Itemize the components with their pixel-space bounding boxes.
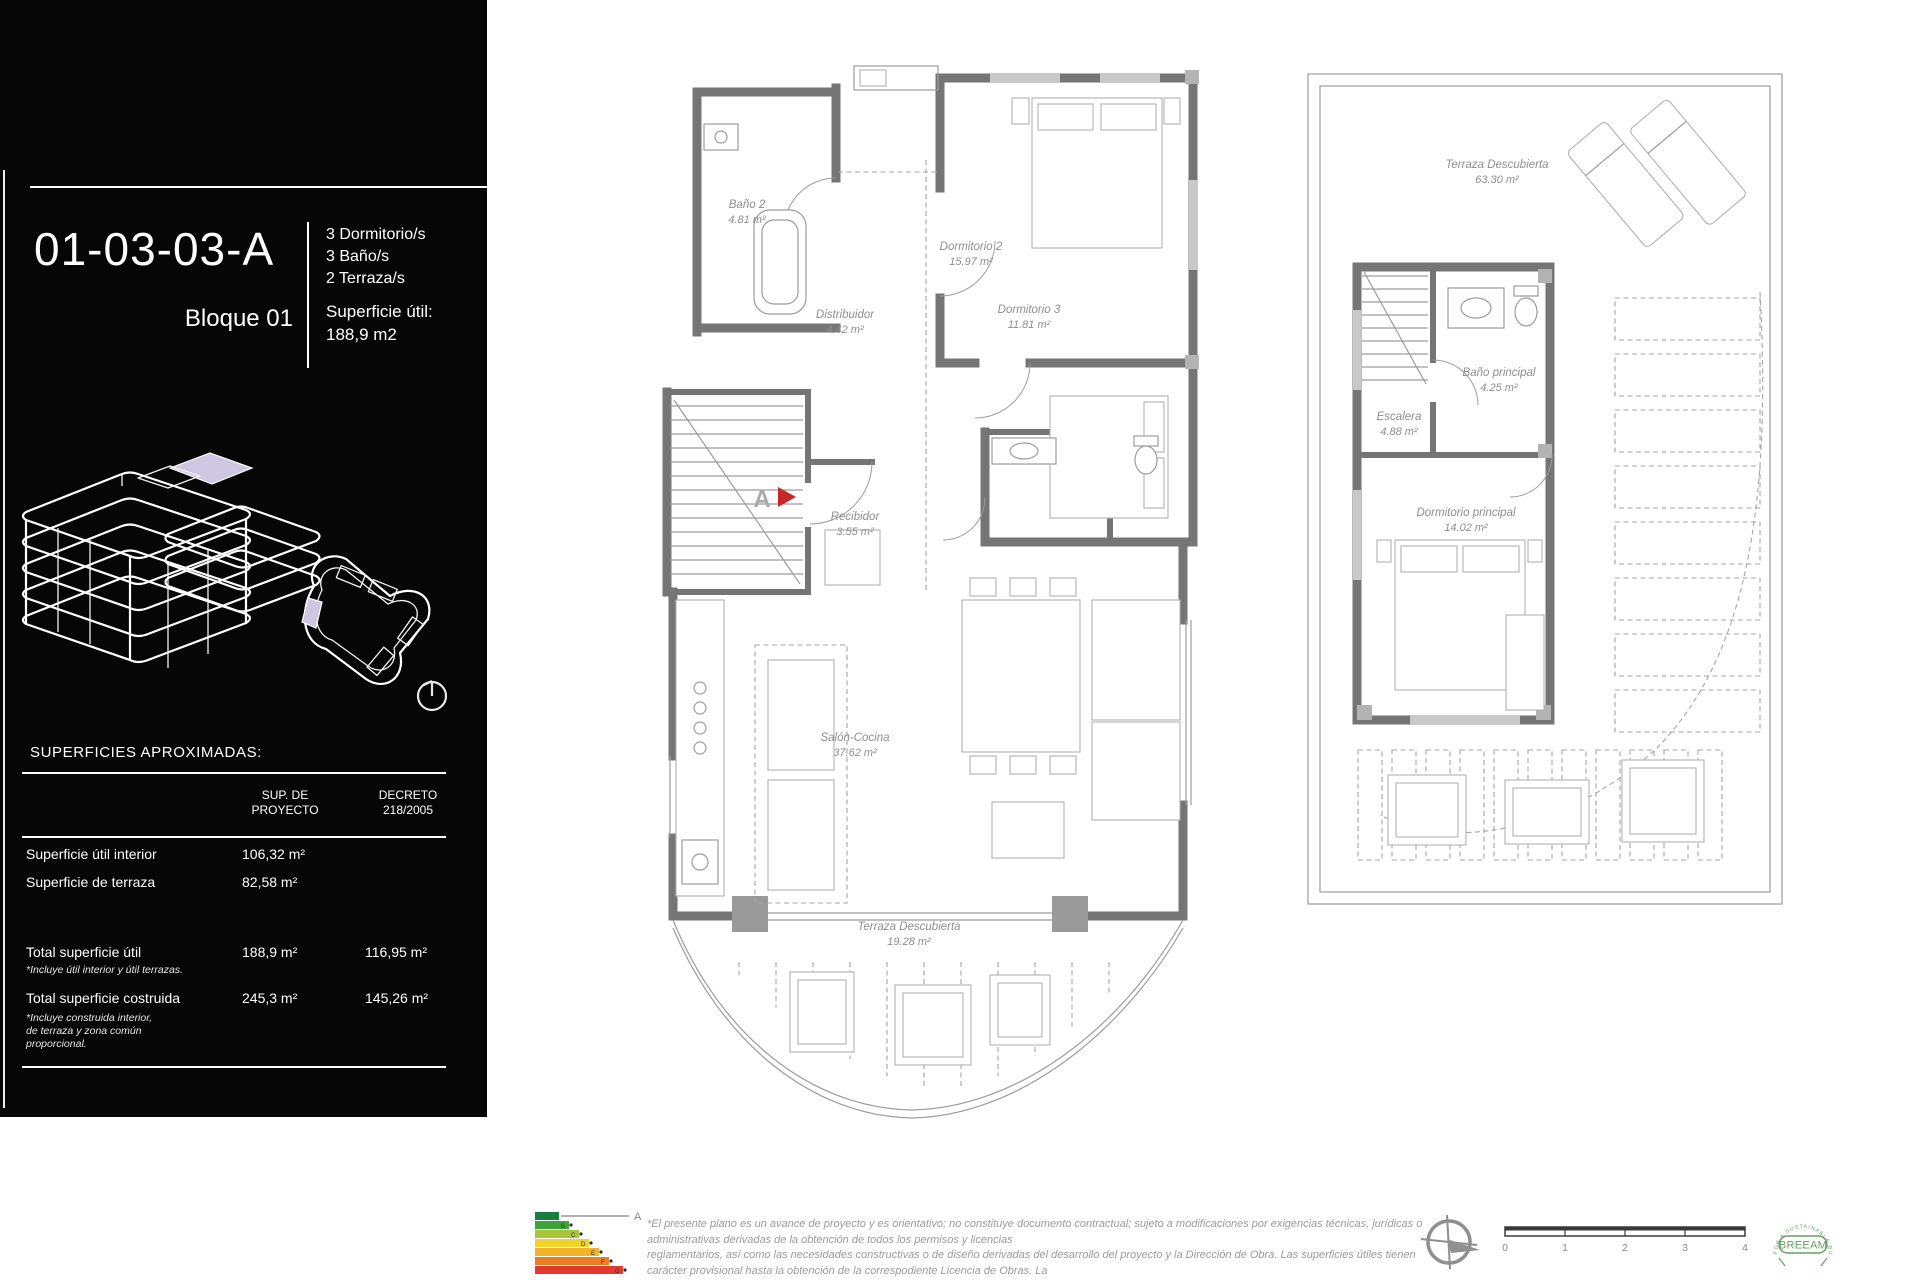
scale-tick: 3 bbox=[1682, 1242, 1688, 1254]
north-indicator-icon bbox=[418, 681, 446, 710]
disclaimer-line: reglamentarios, así como las necesidades… bbox=[647, 1248, 1422, 1264]
feature-bedrooms: 3 Dormitorio/s bbox=[326, 224, 426, 246]
block-name: Bloque 01 bbox=[0, 305, 293, 333]
fixtures-and-furniture bbox=[1377, 286, 1544, 710]
unit-features: 3 Dormitorio/s 3 Baño/s 2 Terraza/s bbox=[326, 224, 426, 290]
feature-bathrooms: 3 Baño/s bbox=[326, 246, 426, 268]
bar-letter: G bbox=[615, 1269, 620, 1275]
titleblock-divider bbox=[307, 222, 309, 368]
room-area: 4.81 m² bbox=[728, 214, 766, 226]
room-label: Baño principal bbox=[1463, 367, 1536, 379]
disclaimer-line: carácter provisional hasta la obtención … bbox=[647, 1264, 1422, 1280]
room-label: Dormitorio principal bbox=[1416, 507, 1516, 519]
breeam-logo: FOR A SUSTAINABLE BUILT ENVIRONMENT BREE… bbox=[1765, 1206, 1841, 1280]
col-header-decreto: DECRETO 218/2005 bbox=[343, 788, 473, 818]
col-header-line: PROYECTO bbox=[220, 803, 350, 818]
entry-marker-letter: A bbox=[753, 486, 770, 513]
stairs bbox=[1362, 272, 1428, 384]
room-label: Baño 2 bbox=[729, 199, 766, 211]
useful-surface-label: Superficie útil: bbox=[326, 300, 433, 323]
room-area: 4.42 m² bbox=[826, 324, 864, 336]
highlighted-unit-graphic bbox=[170, 453, 252, 484]
room-area: 63.30 m² bbox=[1475, 174, 1519, 186]
room-label: Recibidor bbox=[831, 511, 881, 523]
room-label: Terraza Descubierta bbox=[857, 921, 960, 933]
feature-terraces: 2 Terraza/s bbox=[326, 268, 426, 290]
room-area: 4.88 m² bbox=[1380, 426, 1418, 438]
room-label: Distribuidor bbox=[816, 309, 875, 321]
table-rule bbox=[22, 1066, 446, 1068]
table-rule bbox=[22, 772, 446, 774]
building-axonometric-graphic bbox=[23, 453, 320, 668]
bar-letter: C bbox=[571, 1233, 576, 1239]
surface-note: *Incluye útil interior y útil terrazas. bbox=[26, 964, 183, 977]
bar-letter: E bbox=[591, 1251, 595, 1257]
sidebar: 01-03-03-A 3 Dormitorio/s 3 Baño/s 2 Ter… bbox=[0, 0, 487, 1117]
room-labels: Terraza Descubierta 63.30 m² Escalera 4.… bbox=[1377, 159, 1549, 534]
room-label: Escalera bbox=[1377, 411, 1422, 423]
disclaimer-line: administrativas derivadas de la obtenció… bbox=[647, 1233, 1422, 1249]
col-header-line: SUP. DE bbox=[220, 788, 350, 803]
surface-value-decreto: 116,95 m² bbox=[365, 944, 427, 960]
compass-rose-icon bbox=[1417, 1210, 1481, 1274]
surface-value-decreto: 145,26 m² bbox=[365, 990, 428, 1006]
balcony-notch bbox=[854, 66, 938, 90]
useful-surface-value: 188,9 m2 bbox=[326, 323, 433, 346]
surface-label: Total superficie útil bbox=[26, 944, 141, 960]
floor-plan-main-level: A Baño 2 4.81 m² Dormitorio 2 15.97 m² D… bbox=[640, 60, 1200, 1130]
surfaces-heading: SUPERFICIES APROXIMADAS: bbox=[30, 744, 262, 761]
breeam-center-text: BREEAM bbox=[1779, 1240, 1827, 1252]
room-area: 4.25 m² bbox=[1480, 382, 1518, 394]
site-outline-graphic bbox=[302, 556, 429, 684]
disclaimer-line: *El presente plano es un avance de proye… bbox=[647, 1217, 1422, 1233]
surface-value-proyecto: 106,32 m² bbox=[242, 846, 305, 862]
col-header-line: DECRETO bbox=[343, 788, 473, 803]
scale-tick: 2 bbox=[1622, 1242, 1628, 1254]
surface-value-proyecto: 82,58 m² bbox=[242, 874, 297, 890]
scale-tick: 4 bbox=[1742, 1242, 1748, 1254]
useful-surface: Superficie útil: 188,9 m2 bbox=[326, 300, 433, 346]
bar-letter: B bbox=[561, 1224, 565, 1230]
floor-plan-roof-level: Terraza Descubierta 63.30 m² Escalera 4.… bbox=[1300, 60, 1790, 990]
col-header-proyecto: SUP. DE PROYECTO bbox=[220, 788, 350, 818]
room-label: Terraza Descubierta bbox=[1445, 159, 1548, 171]
room-label: Dormitorio 2 bbox=[940, 241, 1003, 253]
room-label: Dormitorio 3 bbox=[998, 304, 1061, 316]
room-area: 19.28 m² bbox=[887, 936, 931, 948]
surface-note: *Incluye construida interior, de terraza… bbox=[26, 1012, 152, 1051]
sidebar-graphics bbox=[0, 408, 487, 738]
scale-bar: 0 1 2 3 4 bbox=[1502, 1220, 1752, 1258]
bar-letter: D bbox=[581, 1242, 586, 1248]
doors bbox=[784, 178, 1030, 540]
scale-tick: 1 bbox=[1562, 1242, 1568, 1254]
surface-label: Superficie útil interior bbox=[26, 846, 157, 862]
energy-rating-icon: A B C D E F G bbox=[533, 1208, 648, 1278]
unit-code: 01-03-03-A bbox=[34, 222, 274, 276]
disclaimer-text: *El presente plano es un avance de proye… bbox=[647, 1217, 1422, 1280]
room-label: Salón-Cocina bbox=[820, 732, 889, 744]
room-area: 15.97 m² bbox=[949, 256, 993, 268]
plan-sheet-page: 01-03-03-A 3 Dormitorio/s 3 Baño/s 2 Ter… bbox=[0, 0, 1920, 1280]
bar-letter: F bbox=[601, 1260, 605, 1266]
surface-value-proyecto: 245,3 m² bbox=[242, 990, 297, 1006]
scale-tick: 0 bbox=[1502, 1242, 1508, 1254]
room-area: 37.62 m² bbox=[833, 747, 877, 759]
doors bbox=[1433, 360, 1552, 497]
room-area: 3.55 m² bbox=[836, 526, 874, 538]
room-area: 14.02 m² bbox=[1444, 522, 1488, 534]
table-rule bbox=[22, 836, 446, 838]
col-header-line: 218/2005 bbox=[343, 803, 473, 818]
sidebar-top-rule bbox=[30, 186, 487, 188]
surface-value-proyecto: 188,9 m² bbox=[242, 944, 297, 960]
terrace bbox=[673, 920, 1183, 1118]
room-area: 11.81 m² bbox=[1008, 319, 1051, 331]
energy-rating-letter: A bbox=[634, 1211, 642, 1223]
sun-loungers bbox=[1566, 81, 1747, 266]
surface-label: Total superficie costruida bbox=[26, 990, 180, 1006]
surface-label: Superficie de terraza bbox=[26, 874, 155, 890]
